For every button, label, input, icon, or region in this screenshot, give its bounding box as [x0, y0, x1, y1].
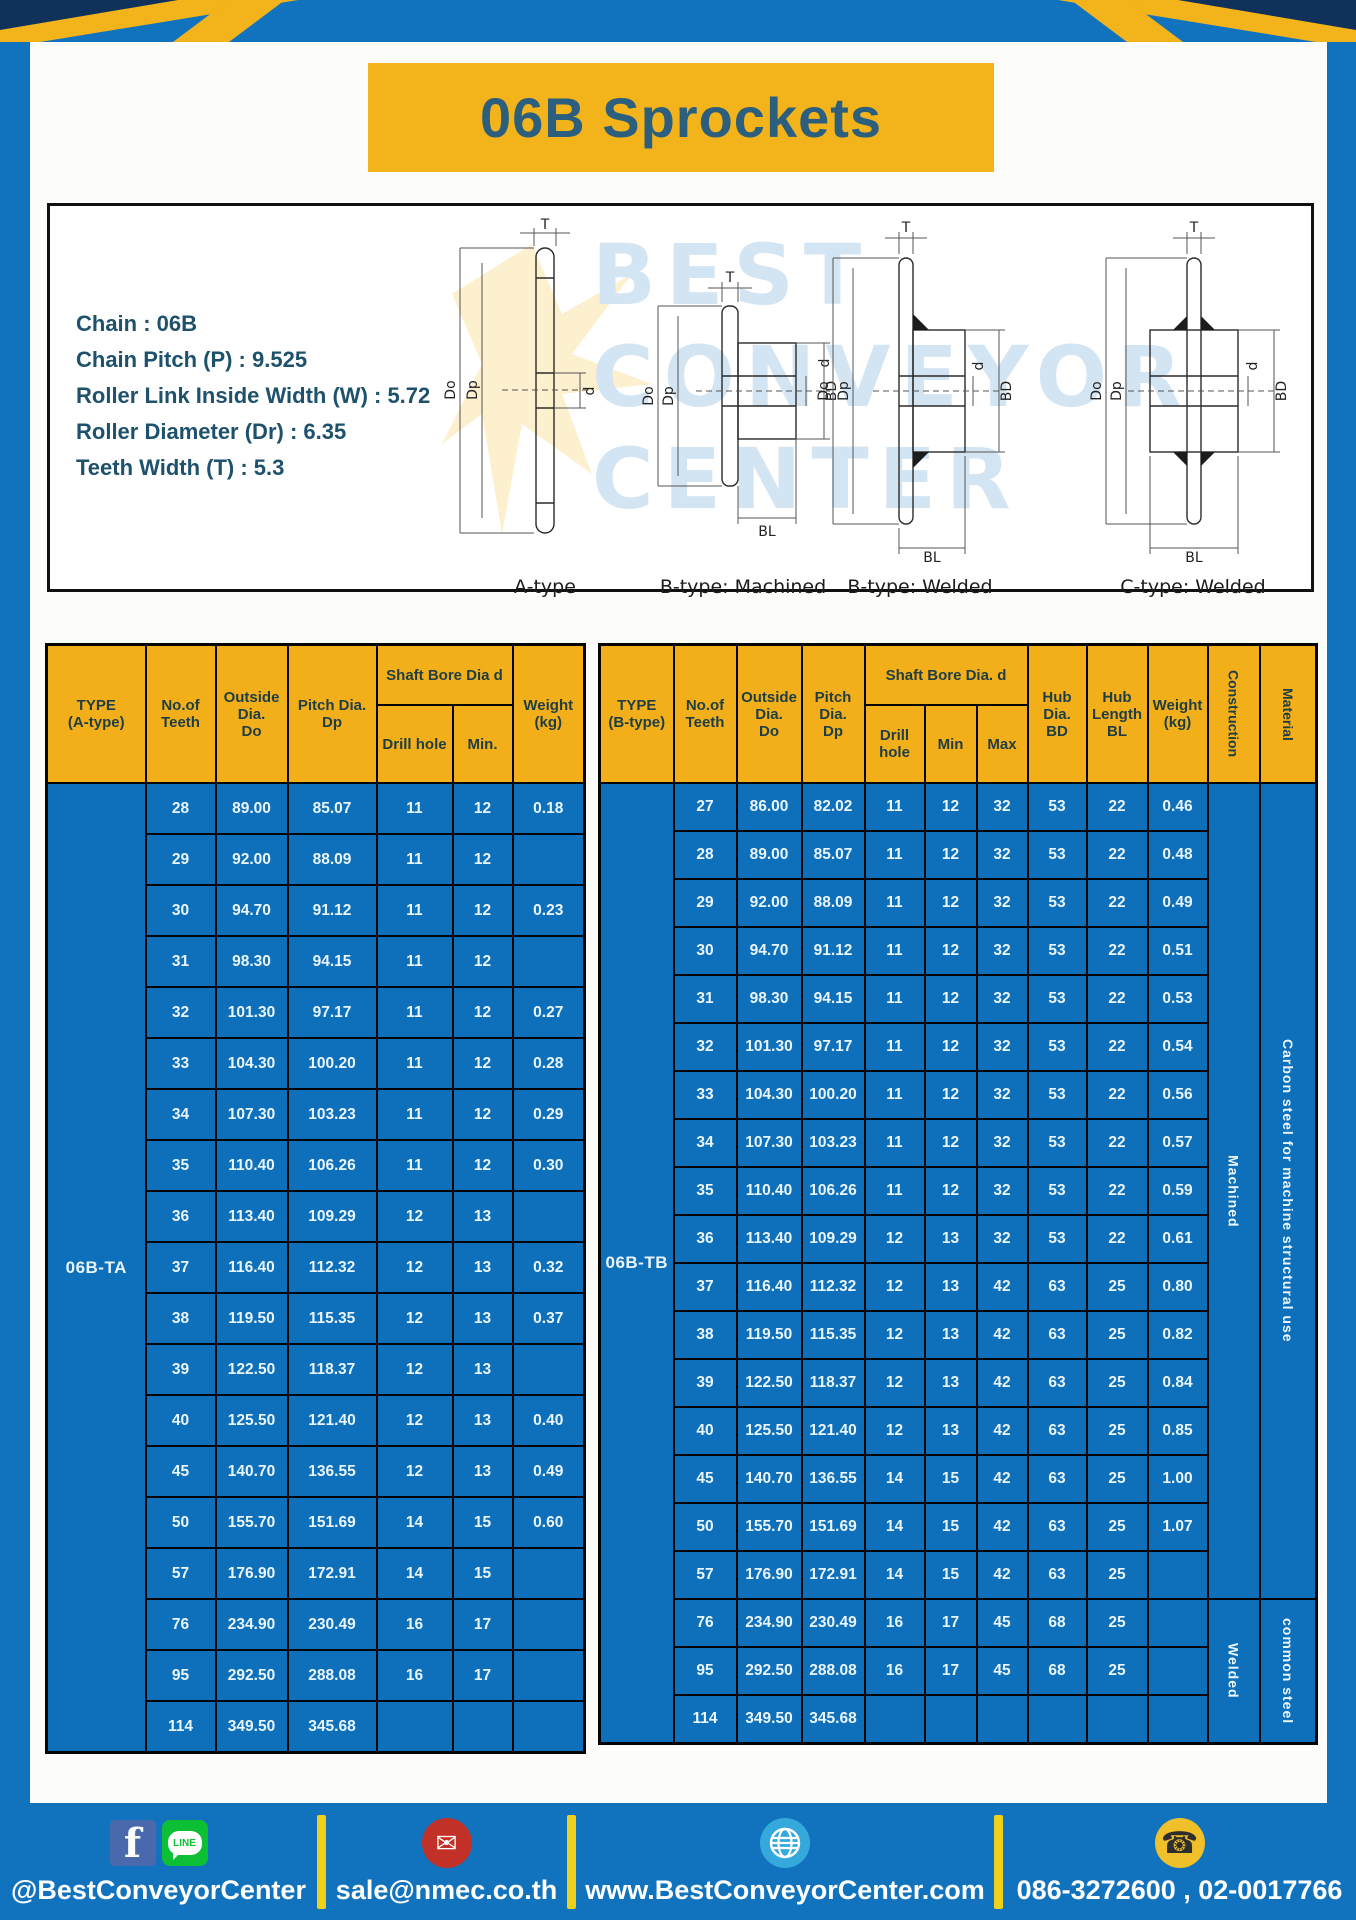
data-cell: 1.07 — [1148, 1503, 1208, 1551]
data-cell: 112.32 — [802, 1263, 865, 1311]
data-cell: 22 — [1087, 927, 1148, 975]
col-header-hub-length: Hub Length BL — [1087, 645, 1148, 784]
col-header-hub-dia: Hub Dia. BD — [1028, 645, 1087, 784]
spec-line: Teeth Width (T) : 5.3 — [76, 450, 430, 486]
col-header-pitch-dia: Pitch Dia. Dp — [802, 645, 865, 784]
data-cell: 114 — [674, 1695, 737, 1744]
data-cell: 140.70 — [216, 1446, 288, 1497]
data-cell: 31 — [146, 936, 216, 987]
data-cell: 0.60 — [513, 1497, 585, 1548]
footer-email-group: ✉ sale@nmec.co.th — [326, 1803, 567, 1920]
data-cell — [513, 1599, 585, 1650]
data-cell: 234.90 — [216, 1599, 288, 1650]
data-cell: 38 — [674, 1311, 737, 1359]
data-cell: 11 — [865, 1023, 925, 1071]
col-header-teeth: No.of Teeth — [674, 645, 737, 784]
data-cell: 0.32 — [513, 1242, 585, 1293]
data-cell — [513, 1344, 585, 1395]
data-cell: 113.40 — [737, 1215, 802, 1263]
data-cell — [865, 1695, 925, 1744]
svg-text:T: T — [901, 220, 911, 236]
data-cell: 17 — [925, 1647, 977, 1695]
svg-text:Dp: Dp — [836, 381, 852, 401]
data-cell: 110.40 — [737, 1167, 802, 1215]
facebook-icon: f — [110, 1820, 156, 1866]
data-cell: 85.07 — [288, 783, 377, 834]
data-cell: 14 — [865, 1503, 925, 1551]
data-cell: 16 — [865, 1647, 925, 1695]
col-header-outside-dia: Outside Dia. Do — [216, 645, 288, 784]
data-cell: 11 — [865, 879, 925, 927]
svg-text:T: T — [725, 270, 735, 286]
data-cell: 0.23 — [513, 885, 585, 936]
data-cell: 88.09 — [802, 879, 865, 927]
table-row: 06B-TA2889.0085.0711120.18 — [47, 783, 585, 834]
data-cell: 11 — [377, 783, 453, 834]
data-cell: 125.50 — [216, 1395, 288, 1446]
data-cell: 98.30 — [737, 975, 802, 1023]
data-cell: 292.50 — [216, 1650, 288, 1701]
data-cell: 45 — [977, 1647, 1028, 1695]
data-cell: 0.28 — [513, 1038, 585, 1089]
svg-text:Do: Do — [641, 386, 657, 405]
data-cell — [377, 1701, 453, 1753]
svg-text:T: T — [540, 218, 550, 233]
data-cell: 25 — [1087, 1647, 1148, 1695]
data-cell: 57 — [146, 1548, 216, 1599]
col-header-drill-hole: Drill hole — [865, 705, 925, 783]
data-cell: 25 — [1087, 1503, 1148, 1551]
data-cell: 104.30 — [737, 1071, 802, 1119]
data-cell: 109.29 — [802, 1215, 865, 1263]
data-cell: 0.54 — [1148, 1023, 1208, 1071]
data-cell: 27 — [674, 783, 737, 831]
svg-text:BL: BL — [1185, 550, 1203, 563]
data-cell: 349.50 — [737, 1695, 802, 1744]
data-cell: 12 — [453, 1140, 513, 1191]
table-a-type: TYPE (A-type) No.of Teeth Outside Dia. D… — [45, 643, 586, 1754]
data-cell: 31 — [674, 975, 737, 1023]
data-cell: 76 — [674, 1599, 737, 1647]
data-cell: 68 — [1028, 1599, 1087, 1647]
data-cell: 42 — [977, 1455, 1028, 1503]
data-cell: 0.46 — [1148, 783, 1208, 831]
data-cell: 0.59 — [1148, 1167, 1208, 1215]
data-cell: 32 — [977, 927, 1028, 975]
data-cell: 12 — [865, 1215, 925, 1263]
data-cell: 12 — [925, 831, 977, 879]
data-cell — [513, 1548, 585, 1599]
data-cell: 88.09 — [288, 834, 377, 885]
col-header-min: Min — [925, 705, 977, 783]
data-cell: 37 — [146, 1242, 216, 1293]
data-cell: 288.08 — [802, 1647, 865, 1695]
data-cell: 33 — [674, 1071, 737, 1119]
data-cell: 12 — [925, 1167, 977, 1215]
diagram-b-type-welded: T Do Dp d BD BL B-type: Welded — [815, 218, 1025, 563]
data-cell — [513, 936, 585, 987]
data-cell: 0.49 — [513, 1446, 585, 1497]
data-cell: 155.70 — [216, 1497, 288, 1548]
data-cell: 0.80 — [1148, 1263, 1208, 1311]
data-cell: 94.15 — [288, 936, 377, 987]
data-cell: 11 — [865, 1119, 925, 1167]
data-cell: 12 — [925, 879, 977, 927]
data-cell: 136.55 — [802, 1455, 865, 1503]
data-cell: 345.68 — [802, 1695, 865, 1744]
data-cell: 15 — [925, 1551, 977, 1599]
page-title: 06B Sprockets — [480, 85, 882, 150]
data-cell: 119.50 — [737, 1311, 802, 1359]
data-cell: 12 — [865, 1263, 925, 1311]
data-cell: 125.50 — [737, 1407, 802, 1455]
data-cell: 118.37 — [802, 1359, 865, 1407]
svg-text:Do: Do — [816, 381, 832, 400]
data-cell — [1148, 1695, 1208, 1744]
data-cell — [1148, 1551, 1208, 1599]
data-cell: 42 — [977, 1503, 1028, 1551]
col-header-type: TYPE (A-type) — [47, 645, 146, 784]
data-cell: 12 — [377, 1242, 453, 1293]
data-cell: 11 — [377, 1038, 453, 1089]
phone-icon: ☎ — [1155, 1818, 1205, 1868]
data-cell: 12 — [377, 1191, 453, 1242]
data-cell: 32 — [674, 1023, 737, 1071]
corner-stripes-decoration — [0, 0, 1356, 42]
globe-icon — [760, 1818, 810, 1868]
data-cell — [513, 1701, 585, 1753]
data-cell: 32 — [977, 1167, 1028, 1215]
data-cell: 11 — [865, 927, 925, 975]
data-cell: 121.40 — [802, 1407, 865, 1455]
material-value: Carbon steel for machine structural use — [1260, 783, 1317, 1599]
data-cell: 32 — [977, 975, 1028, 1023]
diagram-c-type-welded: T Do Dp d BD BL C-typ — [1088, 218, 1298, 563]
svg-text:d: d — [1245, 362, 1261, 371]
data-cell: 32 — [977, 783, 1028, 831]
data-cell: 1.00 — [1148, 1455, 1208, 1503]
svg-text:d: d — [582, 387, 598, 396]
data-cell: 0.84 — [1148, 1359, 1208, 1407]
data-cell: 32 — [977, 1215, 1028, 1263]
data-cell: 68 — [1028, 1647, 1087, 1695]
data-cell: 0.51 — [1148, 927, 1208, 975]
data-cell: 50 — [146, 1497, 216, 1548]
data-cell: 15 — [925, 1503, 977, 1551]
data-cell: 0.37 — [513, 1293, 585, 1344]
data-cell: 95 — [674, 1647, 737, 1695]
data-cell: 115.35 — [288, 1293, 377, 1344]
data-cell: 155.70 — [737, 1503, 802, 1551]
data-cell: 119.50 — [216, 1293, 288, 1344]
data-cell: 349.50 — [216, 1701, 288, 1753]
data-cell: 100.20 — [288, 1038, 377, 1089]
data-cell: 25 — [1087, 1407, 1148, 1455]
data-cell: 53 — [1028, 975, 1087, 1023]
footer-divider — [994, 1815, 1003, 1909]
data-cell: 106.26 — [802, 1167, 865, 1215]
data-cell: 176.90 — [737, 1551, 802, 1599]
type-label: 06B-TB — [600, 783, 674, 1744]
data-cell: 17 — [453, 1650, 513, 1701]
data-cell: 11 — [377, 885, 453, 936]
data-cell: 28 — [146, 783, 216, 834]
data-cell: 151.69 — [802, 1503, 865, 1551]
phone-numbers: 086-3272600 , 02-0017766 — [1017, 1875, 1343, 1906]
data-cell: 14 — [865, 1551, 925, 1599]
data-cell: 53 — [1028, 831, 1087, 879]
data-cell — [1148, 1647, 1208, 1695]
data-cell: 39 — [146, 1344, 216, 1395]
data-cell: 92.00 — [216, 834, 288, 885]
svg-text:BD: BD — [999, 381, 1015, 401]
data-cell: 101.30 — [216, 987, 288, 1038]
data-cell: 13 — [925, 1263, 977, 1311]
data-cell: 107.30 — [216, 1089, 288, 1140]
data-cell: 12 — [453, 1089, 513, 1140]
spec-line: Chain : 06B — [76, 306, 430, 342]
data-cell: 53 — [1028, 927, 1087, 975]
data-cell: 94.15 — [802, 975, 865, 1023]
data-cell: 106.26 — [288, 1140, 377, 1191]
data-cell: 33 — [146, 1038, 216, 1089]
data-cell: 22 — [1087, 831, 1148, 879]
data-cell: 109.29 — [288, 1191, 377, 1242]
data-cell: 63 — [1028, 1407, 1087, 1455]
social-handle: @BestConveyorCenter — [11, 1875, 306, 1906]
data-cell: 12 — [453, 783, 513, 834]
data-cell: 136.55 — [288, 1446, 377, 1497]
data-cell: 11 — [377, 987, 453, 1038]
svg-text:BD: BD — [1274, 381, 1290, 401]
data-cell: 63 — [1028, 1359, 1087, 1407]
data-cell: 172.91 — [802, 1551, 865, 1599]
spec-line: Chain Pitch (P) : 9.525 — [76, 342, 430, 378]
data-cell: 14 — [377, 1548, 453, 1599]
data-cell: 34 — [674, 1119, 737, 1167]
data-cell: 12 — [453, 1038, 513, 1089]
data-cell — [1148, 1599, 1208, 1647]
data-cell: 39 — [674, 1359, 737, 1407]
svg-text:Do: Do — [1089, 381, 1105, 400]
data-cell: 17 — [453, 1599, 513, 1650]
data-cell: 12 — [453, 834, 513, 885]
data-cell: 13 — [925, 1359, 977, 1407]
spec-diagram-panel: BEST CONVEYOR CENTER Chain : 06B Chain P… — [47, 203, 1314, 592]
data-cell: 151.69 — [288, 1497, 377, 1548]
data-cell: 230.49 — [802, 1599, 865, 1647]
data-cell: 12 — [865, 1311, 925, 1359]
data-cell — [453, 1701, 513, 1753]
data-cell: 15 — [453, 1548, 513, 1599]
footer-divider — [317, 1815, 326, 1909]
svg-text:BL: BL — [923, 550, 941, 563]
data-cell: 29 — [146, 834, 216, 885]
data-cell: 0.48 — [1148, 831, 1208, 879]
data-cell: 22 — [1087, 879, 1148, 927]
data-cell: 12 — [925, 1023, 977, 1071]
col-header-max: Max — [977, 705, 1028, 783]
data-cell: 91.12 — [288, 885, 377, 936]
chain-specs: Chain : 06B Chain Pitch (P) : 9.525 Roll… — [76, 306, 430, 486]
data-cell: 121.40 — [288, 1395, 377, 1446]
material-value: common steel — [1260, 1599, 1317, 1744]
data-cell: 11 — [377, 936, 453, 987]
data-cell: 13 — [453, 1446, 513, 1497]
col-header-weight: Weight (kg) — [1148, 645, 1208, 784]
footer-website-group: www.BestConveyorCenter.com — [576, 1803, 994, 1920]
data-cell: 12 — [925, 1071, 977, 1119]
data-cell: 98.30 — [216, 936, 288, 987]
footer-social-group: f LINE @BestConveyorCenter — [0, 1803, 317, 1920]
data-cell: 15 — [453, 1497, 513, 1548]
data-cell: 25 — [1087, 1311, 1148, 1359]
data-cell: 0.56 — [1148, 1071, 1208, 1119]
col-header-outside-dia: Outside Dia. Do — [737, 645, 802, 784]
data-cell: 288.08 — [288, 1650, 377, 1701]
footer-divider — [567, 1815, 576, 1909]
data-cell: 22 — [1087, 1023, 1148, 1071]
data-cell: 25 — [1087, 1359, 1148, 1407]
data-cell: 0.53 — [1148, 975, 1208, 1023]
data-cell: 25 — [1087, 1455, 1148, 1503]
data-cell: 13 — [453, 1395, 513, 1446]
data-cell — [1028, 1695, 1087, 1744]
data-cell: 13 — [925, 1407, 977, 1455]
data-cell — [925, 1695, 977, 1744]
data-cell: 57 — [674, 1551, 737, 1599]
construction-value: Machined — [1208, 783, 1260, 1599]
data-cell: 17 — [925, 1599, 977, 1647]
table-b-type: TYPE (B-type) No.of Teeth Outside Dia. D… — [598, 643, 1318, 1745]
data-cell: 11 — [377, 1089, 453, 1140]
data-cell: 12 — [453, 885, 513, 936]
data-cell: 29 — [674, 879, 737, 927]
data-cell: 32 — [146, 987, 216, 1038]
data-cell: 53 — [1028, 1167, 1087, 1215]
data-cell: 0.61 — [1148, 1215, 1208, 1263]
data-cell: 63 — [1028, 1503, 1087, 1551]
data-cell: 14 — [865, 1455, 925, 1503]
col-header-construction: Construction — [1208, 645, 1260, 784]
data-cell: 13 — [925, 1311, 977, 1359]
data-cell: 91.12 — [802, 927, 865, 975]
data-cell: 16 — [865, 1599, 925, 1647]
data-cell: 12 — [377, 1446, 453, 1497]
data-cell: 42 — [977, 1311, 1028, 1359]
data-cell: 53 — [1028, 1023, 1087, 1071]
data-cell: 22 — [1087, 975, 1148, 1023]
col-header-drill-hole: Drill hole — [377, 705, 453, 783]
data-cell: 22 — [1087, 1215, 1148, 1263]
data-cell: 28 — [674, 831, 737, 879]
data-cell: 36 — [146, 1191, 216, 1242]
data-cell: 103.23 — [288, 1089, 377, 1140]
data-cell: 13 — [453, 1242, 513, 1293]
data-cell: 0.49 — [1148, 879, 1208, 927]
data-cell: 16 — [377, 1650, 453, 1701]
svg-text:d: d — [971, 362, 987, 371]
title-banner: 06B Sprockets — [368, 63, 994, 172]
spec-line: Roller Link Inside Width (W) : 5.72 — [76, 378, 430, 414]
data-cell: 234.90 — [737, 1599, 802, 1647]
data-cell: 140.70 — [737, 1455, 802, 1503]
data-cell: 0.82 — [1148, 1311, 1208, 1359]
data-cell: 63 — [1028, 1263, 1087, 1311]
data-cell: 94.70 — [737, 927, 802, 975]
data-cell: 13 — [453, 1191, 513, 1242]
data-cell: 63 — [1028, 1311, 1087, 1359]
data-cell: 45 — [977, 1599, 1028, 1647]
datasheet-page: 06B Sprockets BEST CONVEYOR CENTER Chain… — [0, 0, 1356, 1920]
data-cell: 100.20 — [802, 1071, 865, 1119]
table-row: 76234.90230.491617456825Weldedcommon ste… — [600, 1599, 1317, 1647]
data-cell — [977, 1695, 1028, 1744]
data-cell: 82.02 — [802, 783, 865, 831]
data-cell: 230.49 — [288, 1599, 377, 1650]
data-cell: 112.32 — [288, 1242, 377, 1293]
data-cell: 345.68 — [288, 1701, 377, 1753]
data-cell: 0.85 — [1148, 1407, 1208, 1455]
data-cell: 30 — [146, 885, 216, 936]
data-cell: 25 — [1087, 1263, 1148, 1311]
data-cell: 12 — [925, 927, 977, 975]
data-cell: 0.40 — [513, 1395, 585, 1446]
data-cell: 11 — [865, 975, 925, 1023]
data-cell: 42 — [977, 1551, 1028, 1599]
data-cell: 107.30 — [737, 1119, 802, 1167]
data-cell: 104.30 — [216, 1038, 288, 1089]
svg-text:T: T — [1189, 220, 1199, 236]
data-cell: 86.00 — [737, 783, 802, 831]
data-cell: 95 — [146, 1650, 216, 1701]
svg-text:Dp: Dp — [465, 380, 481, 400]
data-cell: 32 — [977, 831, 1028, 879]
data-cell: 94.70 — [216, 885, 288, 936]
data-cell: 12 — [925, 1119, 977, 1167]
col-header-shaft-bore: Shaft Bore Dia d — [377, 645, 513, 706]
data-cell: 63 — [1028, 1455, 1087, 1503]
data-cell: 53 — [1028, 1119, 1087, 1167]
svg-text:Dp: Dp — [661, 386, 677, 406]
col-header-weight: Weight (kg) — [513, 645, 585, 784]
data-cell: 92.00 — [737, 879, 802, 927]
data-cell: 36 — [674, 1215, 737, 1263]
data-cell: 45 — [146, 1446, 216, 1497]
col-header-shaft-bore: Shaft Bore Dia. d — [865, 645, 1028, 706]
data-cell: 35 — [674, 1167, 737, 1215]
spec-line: Roller Diameter (Dr) : 6.35 — [76, 414, 430, 450]
data-cell: 101.30 — [737, 1023, 802, 1071]
data-cell: 35 — [146, 1140, 216, 1191]
data-cell — [513, 1191, 585, 1242]
svg-text:BL: BL — [758, 524, 776, 540]
data-cell: 53 — [1028, 879, 1087, 927]
data-cell: 0.27 — [513, 987, 585, 1038]
svg-text:Dp: Dp — [1109, 381, 1125, 401]
data-cell: 14 — [377, 1497, 453, 1548]
data-cell: 25 — [1087, 1599, 1148, 1647]
data-cell: 42 — [977, 1359, 1028, 1407]
footer-phone-group: ☎ 086-3272600 , 02-0017766 — [1003, 1803, 1356, 1920]
data-cell: 0.30 — [513, 1140, 585, 1191]
data-cell: 13 — [453, 1344, 513, 1395]
type-label: 06B-TA — [47, 783, 146, 1753]
data-cell: 89.00 — [737, 831, 802, 879]
data-cell: 114 — [146, 1701, 216, 1753]
data-cell: 13 — [453, 1293, 513, 1344]
data-cell: 13 — [925, 1215, 977, 1263]
